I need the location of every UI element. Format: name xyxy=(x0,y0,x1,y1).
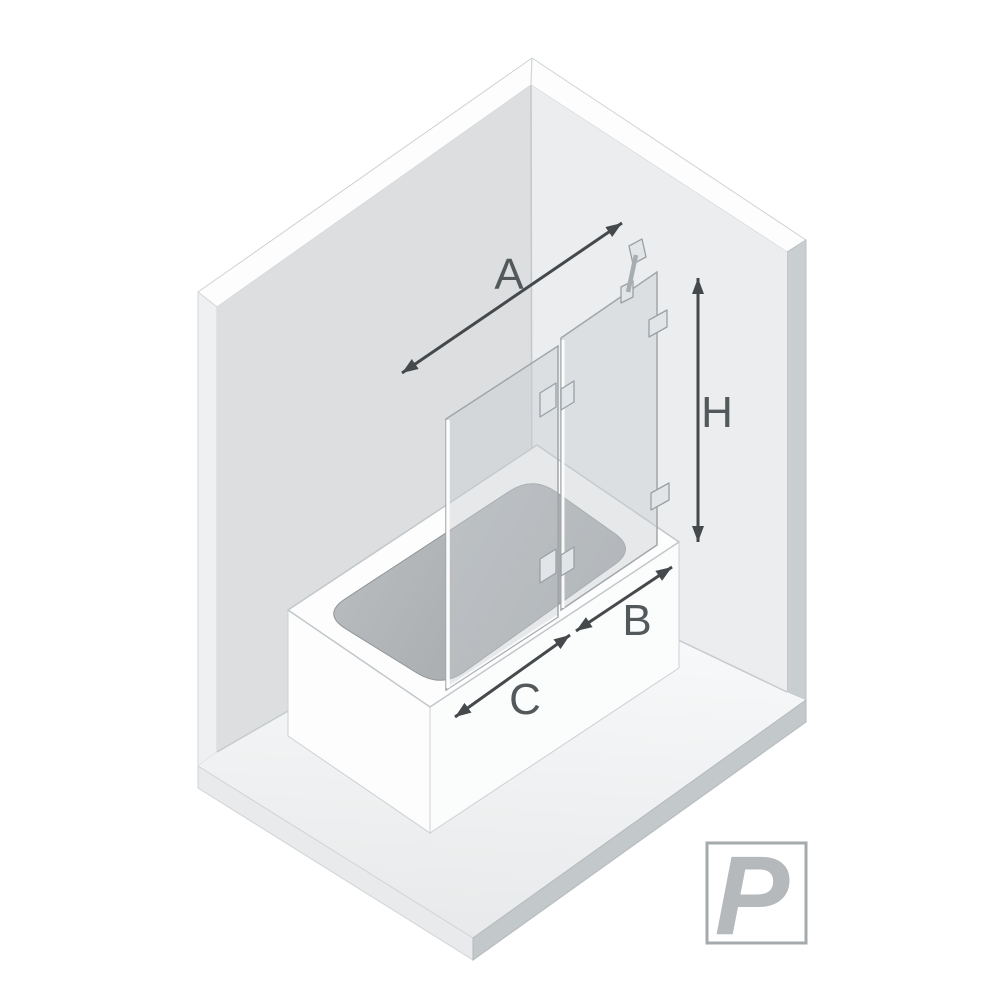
dimension-label-b: B xyxy=(622,596,651,645)
dimension-label-a: A xyxy=(494,250,524,299)
orientation-badge: P xyxy=(707,833,806,958)
diagram-canvas: A H B C P xyxy=(0,0,1000,1000)
dimension-label-c: C xyxy=(509,675,541,724)
left-wall-side-face xyxy=(198,292,217,766)
orientation-badge-letter: P xyxy=(715,833,790,958)
bath-screen-dimension-diagram: A H B C P xyxy=(0,0,1000,1000)
dimension-label-h: H xyxy=(701,388,733,437)
right-wall-side-face xyxy=(787,240,806,700)
